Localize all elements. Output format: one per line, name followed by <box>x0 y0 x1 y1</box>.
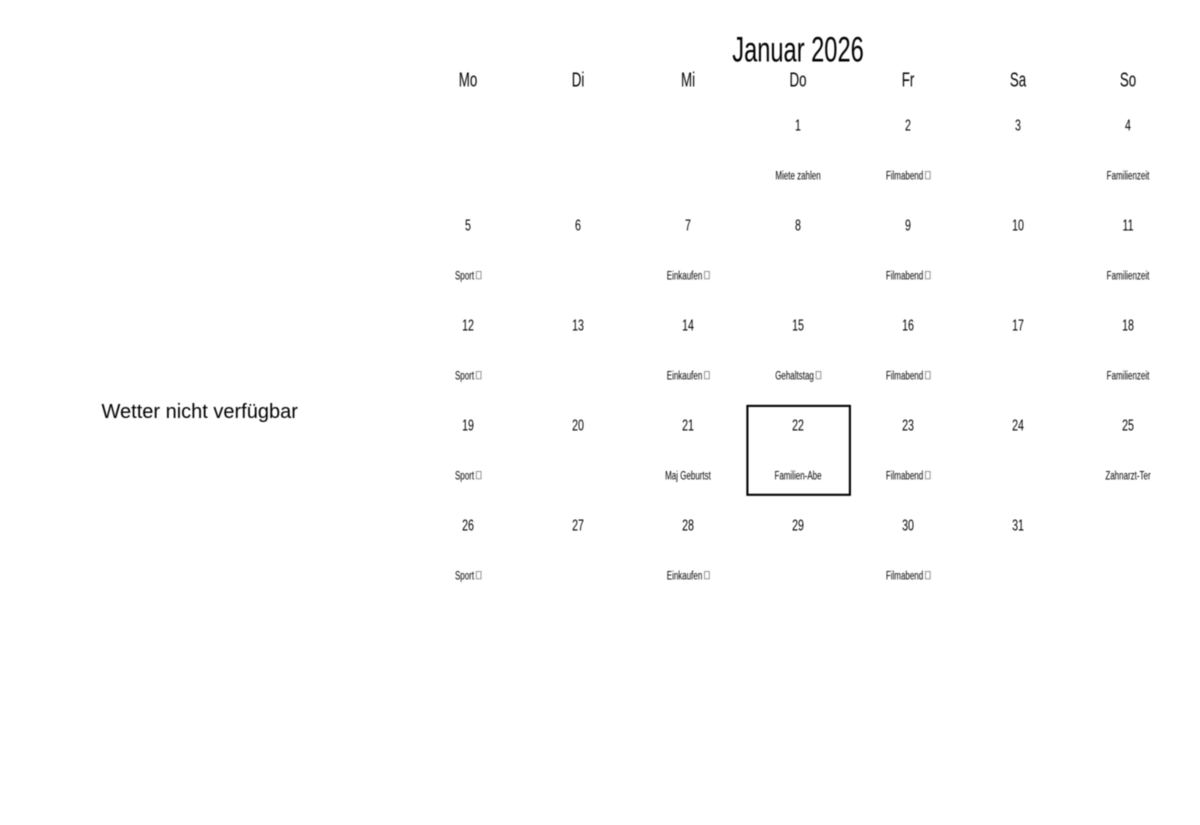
svg-text:Mi: Mi <box>681 69 695 91</box>
svg-text:20: 20 <box>572 416 584 434</box>
svg-text:Di: Di <box>572 69 585 91</box>
svg-text:Familienzeit: Familienzeit <box>1107 370 1150 383</box>
svg-text:Familienzeit: Familienzeit <box>1107 170 1150 183</box>
svg-text:Januar 2026: Januar 2026 <box>732 31 864 70</box>
svg-text:Gehaltstag: Gehaltstag <box>775 370 814 383</box>
svg-text:21: 21 <box>682 416 694 434</box>
svg-text:Filmabend: Filmabend <box>886 170 924 183</box>
svg-text:7: 7 <box>685 216 691 234</box>
svg-text:2: 2 <box>905 116 911 134</box>
svg-text:6: 6 <box>575 216 581 234</box>
svg-text:Filmabend: Filmabend <box>886 270 924 283</box>
svg-text:1: 1 <box>795 116 801 134</box>
svg-text:24: 24 <box>1012 416 1024 434</box>
svg-text:12: 12 <box>462 316 474 334</box>
svg-text:9: 9 <box>905 216 911 234</box>
svg-text:4: 4 <box>1125 116 1131 134</box>
svg-text:Mo: Mo <box>459 69 478 91</box>
svg-text:11: 11 <box>1122 216 1133 234</box>
svg-text:3: 3 <box>1015 116 1021 134</box>
svg-text:Sport: Sport <box>455 570 474 583</box>
svg-text:18: 18 <box>1122 316 1134 334</box>
svg-text:Sport: Sport <box>455 270 474 283</box>
svg-text:10: 10 <box>1012 216 1024 234</box>
svg-text:17: 17 <box>1012 316 1024 334</box>
svg-text:27: 27 <box>572 516 584 534</box>
svg-text:5: 5 <box>465 216 471 234</box>
svg-text:Do: Do <box>789 69 806 91</box>
svg-text:15: 15 <box>792 316 804 334</box>
svg-text:16: 16 <box>902 316 914 334</box>
svg-text:23: 23 <box>902 416 914 434</box>
svg-text:Einkaufen: Einkaufen <box>667 270 703 283</box>
svg-text:Miete zahlen: Miete zahlen <box>775 170 820 183</box>
svg-text:30: 30 <box>902 516 914 534</box>
svg-text:Maj Geburtst: Maj Geburtst <box>665 470 711 483</box>
svg-text:19: 19 <box>462 416 474 434</box>
svg-text:Wetter nicht verfügbar: Wetter nicht verfügbar <box>102 401 299 423</box>
svg-text:Filmabend: Filmabend <box>886 470 924 483</box>
svg-text:26: 26 <box>462 516 474 534</box>
svg-text:13: 13 <box>572 316 584 334</box>
svg-text:22: 22 <box>792 416 804 434</box>
svg-text:29: 29 <box>792 516 804 534</box>
svg-text:Zahnarzt-Ter: Zahnarzt-Ter <box>1105 470 1151 483</box>
svg-text:Sport: Sport <box>455 370 474 383</box>
svg-text:Filmabend: Filmabend <box>886 570 924 583</box>
svg-text:28: 28 <box>682 516 694 534</box>
svg-text:So: So <box>1120 69 1136 91</box>
svg-text:31: 31 <box>1012 516 1024 534</box>
svg-text:Familien-Abe: Familien-Abe <box>774 470 821 483</box>
svg-text:Fr: Fr <box>902 69 915 91</box>
svg-text:25: 25 <box>1122 416 1134 434</box>
svg-text:Filmabend: Filmabend <box>886 370 924 383</box>
svg-text:8: 8 <box>795 216 801 234</box>
svg-text:14: 14 <box>682 316 694 334</box>
svg-text:Einkaufen: Einkaufen <box>667 370 703 383</box>
svg-text:Sport: Sport <box>455 470 474 483</box>
svg-text:Sa: Sa <box>1010 69 1027 91</box>
svg-text:Einkaufen: Einkaufen <box>667 570 703 583</box>
svg-text:Familienzeit: Familienzeit <box>1107 270 1150 283</box>
